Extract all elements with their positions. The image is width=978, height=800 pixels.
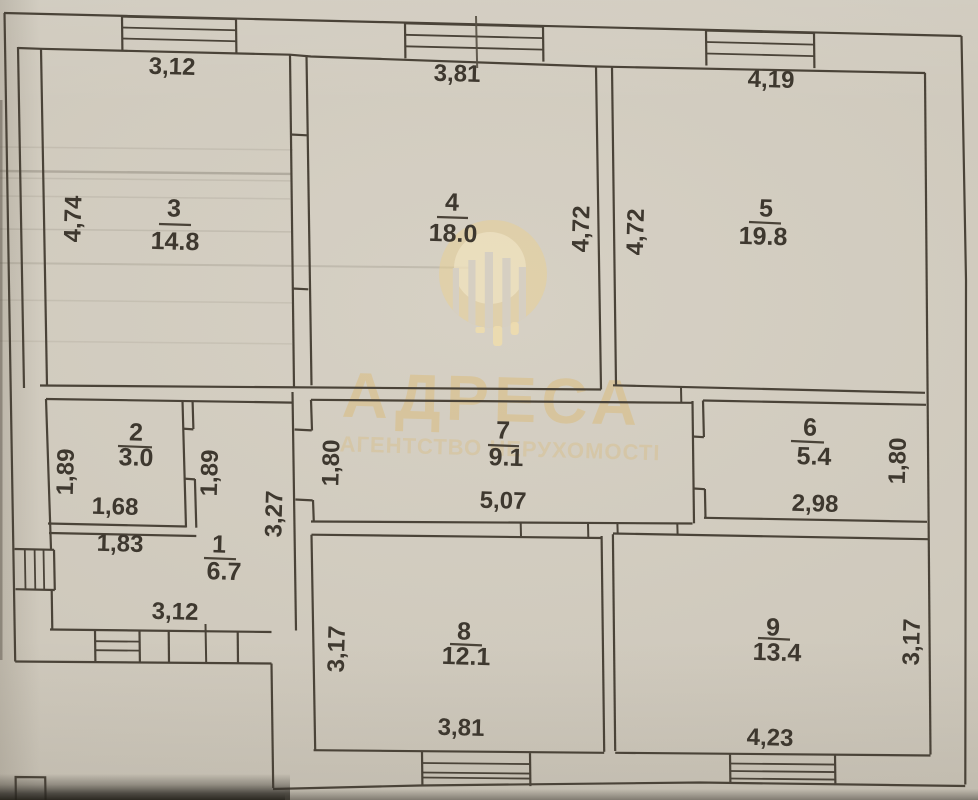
svg-text:3,17: 3,17	[898, 618, 926, 665]
svg-text:2,98: 2,98	[791, 490, 838, 518]
svg-text:1,83: 1,83	[96, 530, 143, 558]
svg-text:4,74: 4,74	[59, 195, 87, 243]
svg-text:19.8: 19.8	[738, 222, 788, 251]
svg-text:6.7: 6.7	[206, 557, 242, 586]
svg-text:3: 3	[167, 194, 182, 222]
svg-text:5: 5	[759, 194, 774, 222]
svg-text:9.1: 9.1	[488, 443, 524, 472]
svg-text:14.8: 14.8	[150, 227, 200, 256]
svg-text:4,72: 4,72	[622, 208, 650, 255]
svg-text:3,17: 3,17	[323, 625, 351, 672]
svg-text:1,89: 1,89	[196, 449, 224, 496]
svg-text:1,80: 1,80	[317, 439, 345, 486]
svg-text:13.4: 13.4	[752, 638, 802, 667]
svg-text:3,81: 3,81	[433, 60, 480, 88]
svg-text:1,68: 1,68	[91, 493, 138, 521]
svg-text:1: 1	[212, 530, 227, 558]
svg-text:12.1: 12.1	[441, 642, 491, 671]
svg-text:1,80: 1,80	[884, 437, 912, 484]
svg-text:3,27: 3,27	[260, 490, 288, 537]
svg-text:3,12: 3,12	[148, 53, 195, 81]
svg-text:АДРЕСА: АДРЕСА	[341, 359, 643, 439]
svg-text:1,89: 1,89	[52, 448, 80, 495]
svg-text:3,81: 3,81	[437, 714, 484, 742]
svg-text:4,23: 4,23	[746, 724, 793, 752]
svg-text:18.0: 18.0	[428, 219, 477, 248]
svg-text:7: 7	[496, 416, 511, 444]
svg-text:4,19: 4,19	[747, 66, 794, 94]
svg-text:3,12: 3,12	[151, 598, 198, 626]
svg-text:4,72: 4,72	[567, 205, 595, 252]
svg-text:6: 6	[803, 413, 818, 441]
svg-text:5.4: 5.4	[796, 442, 832, 471]
svg-text:5,07: 5,07	[479, 487, 526, 515]
svg-text:4: 4	[445, 188, 460, 216]
